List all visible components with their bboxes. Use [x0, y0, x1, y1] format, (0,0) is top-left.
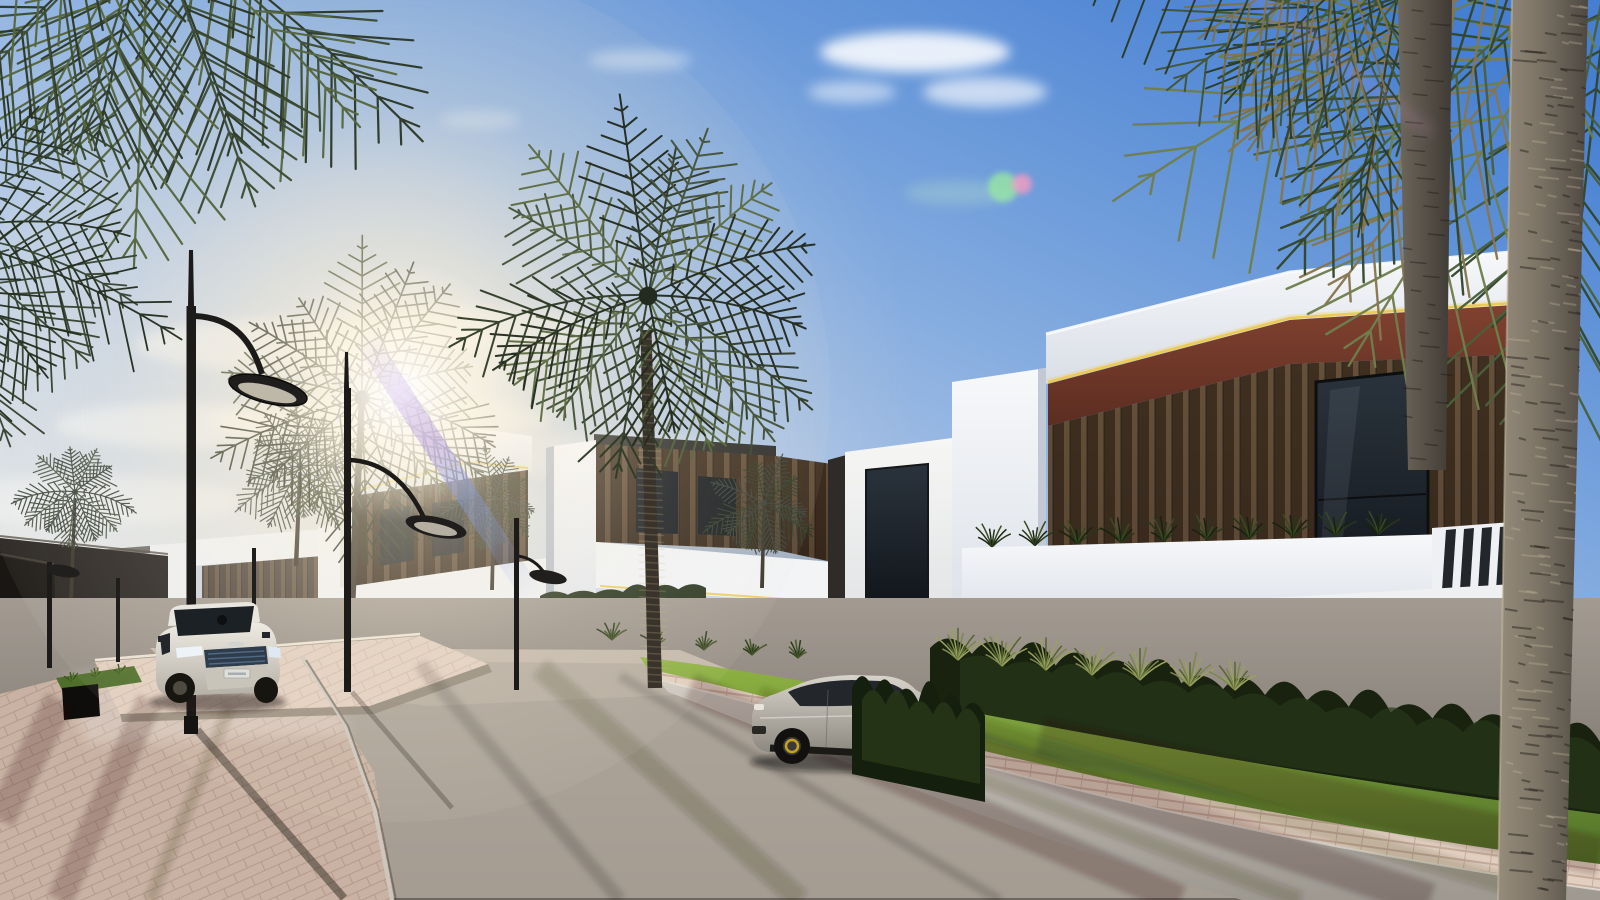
lamp-pole-distant — [116, 578, 120, 662]
porsche-headlight — [754, 704, 764, 710]
suv-windshield — [174, 606, 254, 636]
flare-pink-blob — [1012, 174, 1032, 194]
driver-silhouette — [217, 615, 227, 625]
architectural-render — [0, 0, 1600, 900]
